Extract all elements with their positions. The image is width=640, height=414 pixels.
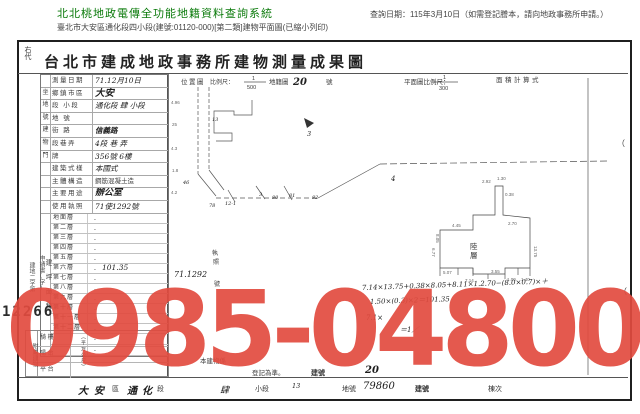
floor-row: 第四層 (51, 244, 168, 254)
table-row: 號地 號 (41, 113, 168, 126)
phone-watermark: 0985-048006 (6, 277, 640, 381)
query-date: 查詢日期：115年3月10日（如需登記謄本，請向地政事務所申請。） (370, 9, 608, 20)
table-row: 建街 路信義路 (41, 125, 168, 138)
permit-label: 照 (213, 259, 219, 266)
table-row: 測量日期71.12月10日 (41, 75, 168, 88)
lot-number-4: 4 (390, 175, 395, 183)
table-row: 主體構造鋼筋混凝土造 (41, 176, 168, 189)
table-row: 坐鄉鎮市區大安 (41, 88, 168, 101)
lot-number: 80 (272, 195, 279, 201)
scale-denominator: 500 (247, 85, 256, 91)
dimension: 13.75 (533, 246, 538, 258)
dimension: 0.38 (505, 192, 514, 197)
plan-scale-denominator: 300 (439, 86, 448, 92)
lot-number: 3 (259, 192, 262, 198)
dimension: 6.77 (431, 248, 436, 257)
floor-plan-outline (440, 186, 530, 274)
page: { "header": { "system_title": "北北桃地政電傳全功… (0, 0, 640, 414)
building-outline (214, 100, 252, 141)
lot-mark: 13 (212, 117, 218, 123)
lot-number-3: 3 (307, 130, 311, 138)
plan-scale-numerator: 1 (443, 75, 446, 81)
dimension: 4.45 (452, 223, 461, 228)
table-row: 建築式樣本國式 (41, 163, 168, 176)
lot-number: 82 (312, 195, 318, 201)
edge-measure: 4.3 (171, 146, 178, 151)
location-map-label: 位置圖 (181, 77, 205, 86)
edge-measure: 1.8 (172, 168, 179, 173)
corner-note: 右代 (24, 46, 31, 66)
table-row: 地段 小段通化段 肆 小段 (41, 100, 168, 113)
dimension: 2.92 (482, 179, 491, 184)
lot-number: 78 (209, 203, 215, 209)
lot-number: 12-1 (225, 201, 236, 207)
document-line: 臺北市大安區通化段四小段(建號:01120-000)[第二類]建物平面圖(已縮小… (57, 22, 328, 33)
floor-row: 第五層 (51, 254, 168, 264)
permit-label: 執 (212, 249, 218, 257)
edge-measure: 25 (172, 122, 178, 127)
table-row: 門牌356號 6樓 (41, 151, 168, 164)
lot-number: 46 (182, 180, 190, 186)
lot-number: 81 (289, 193, 295, 199)
dimension: 1.30 (497, 176, 506, 181)
edge-measure: 4.96 (171, 100, 180, 105)
floor-row: 第三層 (51, 234, 168, 244)
floor-name: 陸 (470, 241, 478, 251)
location-scale-label: 比例尺： (210, 78, 234, 86)
document-title: 台北市建成地政事務所建物測量成果圖 (44, 51, 367, 72)
edge-measure: 4.2 (171, 190, 178, 195)
table-row: 使用執照71使1292號 (41, 201, 168, 214)
cadastral-map-label: 地籍圖 (269, 77, 289, 86)
margin-paren: （ (617, 139, 625, 148)
floor-row: 地面層 (51, 214, 168, 224)
cadastral-map-suffix: 號 (326, 77, 333, 86)
scale-numerator: 1 (252, 76, 255, 82)
cadastral-map-number: 20 (292, 77, 307, 88)
dimension: 2.70 (508, 221, 517, 226)
floor-name: 層 (470, 251, 478, 260)
area-formula-label: 面積計算式 (496, 75, 541, 84)
north-arrow-icon (304, 118, 314, 128)
floor-row: 第二層 (51, 224, 168, 234)
system-title: 北北桃地政電傳全功能地籍資料查詢系統 (57, 5, 273, 21)
table-row: 主要用途辦公室 (41, 188, 168, 201)
lot-boundary (380, 161, 608, 164)
lot-boundary (318, 164, 380, 198)
table-row: 物段巷弄4段 巷 弄 (41, 138, 168, 151)
dimension: 8.05 (435, 234, 440, 243)
